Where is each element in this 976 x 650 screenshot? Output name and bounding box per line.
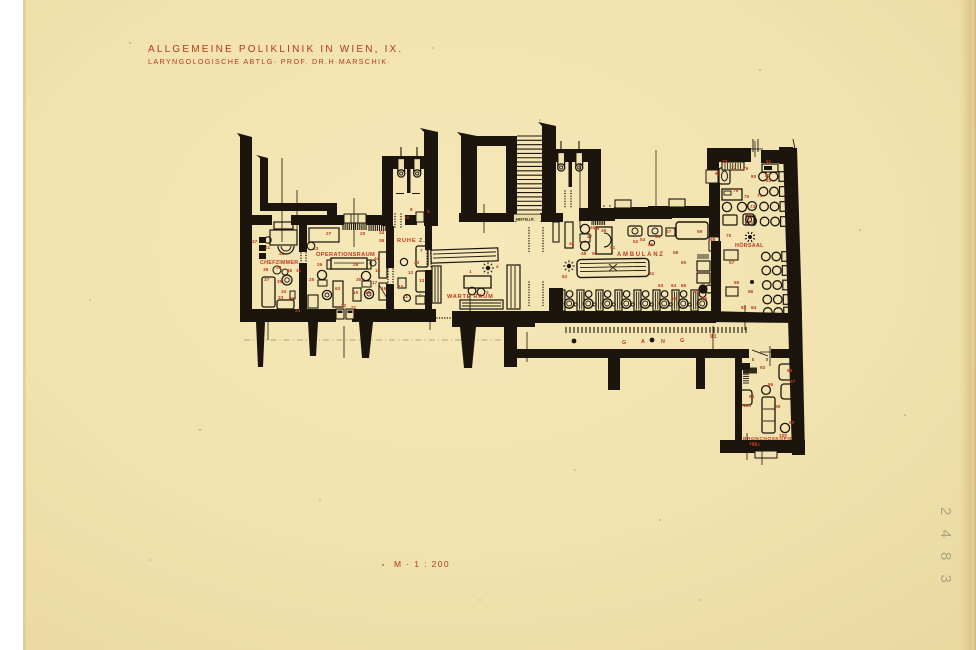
svg-text:AMBULANZ: AMBULANZ (617, 252, 665, 258)
svg-text:81: 81 (766, 159, 772, 164)
svg-text:23: 23 (313, 246, 319, 251)
svg-text:62: 62 (562, 274, 568, 279)
svg-text:91: 91 (710, 334, 717, 340)
svg-text:60: 60 (681, 260, 687, 265)
svg-text:55: 55 (648, 242, 654, 247)
svg-text:16: 16 (404, 215, 410, 220)
svg-text:57: 57 (729, 260, 735, 265)
svg-text:80: 80 (751, 174, 757, 179)
svg-text:47: 47 (587, 234, 593, 239)
svg-text:17: 17 (372, 280, 378, 285)
svg-text:64: 64 (671, 283, 677, 288)
svg-text:52: 52 (633, 239, 639, 244)
svg-text:70: 70 (726, 233, 732, 238)
svg-text:19: 19 (353, 290, 359, 295)
svg-text:84: 84 (751, 305, 757, 310)
svg-text:78: 78 (722, 159, 728, 164)
svg-text:44: 44 (374, 256, 380, 261)
svg-text:37: 37 (666, 229, 672, 234)
svg-text:63: 63 (658, 283, 664, 288)
svg-text:74: 74 (757, 193, 763, 198)
svg-text:2 4 8 3: 2 4 8 3 (937, 507, 954, 588)
svg-text:79: 79 (743, 166, 749, 171)
svg-text:54: 54 (655, 234, 661, 239)
svg-text:39: 39 (263, 267, 269, 272)
svg-text:11: 11 (403, 294, 408, 299)
svg-text:100: 100 (779, 433, 787, 438)
svg-text:1: 1 (469, 269, 472, 274)
svg-text:12: 12 (408, 270, 414, 275)
svg-text:46: 46 (287, 268, 293, 273)
svg-text:37: 37 (264, 277, 270, 282)
svg-text:61: 61 (649, 271, 655, 276)
svg-text:66: 66 (702, 296, 708, 301)
svg-text:32: 32 (289, 296, 295, 301)
svg-text:7: 7 (420, 248, 423, 253)
svg-text:25: 25 (309, 277, 315, 282)
svg-text:76: 76 (733, 188, 739, 193)
svg-text:ABSTELLR.: ABSTELLR. (516, 217, 535, 221)
svg-text:OPERATIONSRAUM: OPERATIONSRAUM (316, 252, 375, 258)
svg-text:RUHE Z.: RUHE Z. (397, 238, 426, 244)
svg-text:89: 89 (734, 280, 740, 285)
svg-text:ALLGEMEINE POLIKLINIK IN WIEN,: ALLGEMEINE POLIKLINIK IN WIEN, IX. (148, 44, 403, 55)
svg-text:71: 71 (748, 220, 754, 225)
svg-text:96: 96 (787, 368, 793, 373)
svg-text:103: 103 (743, 403, 751, 408)
svg-text:28: 28 (353, 262, 359, 267)
svg-text:48: 48 (581, 251, 587, 256)
svg-text:43: 43 (414, 260, 420, 265)
svg-text:47: 47 (252, 239, 258, 244)
svg-text:63: 63 (694, 289, 700, 294)
svg-text:LARYNGOLOGISCHE ABTLG· PROF. D: LARYNGOLOGISCHE ABTLG· PROF. DR.H·MARSCH… (148, 57, 391, 66)
svg-text:92: 92 (760, 365, 766, 370)
svg-text:83: 83 (766, 178, 772, 183)
svg-text:34: 34 (379, 230, 385, 235)
svg-text:3: 3 (486, 290, 489, 295)
svg-text:51: 51 (610, 245, 616, 250)
svg-text:21: 21 (351, 305, 357, 310)
svg-text:46: 46 (601, 228, 607, 233)
svg-text:58: 58 (673, 250, 679, 255)
svg-text:49: 49 (594, 226, 600, 231)
svg-text:33: 33 (278, 295, 284, 300)
svg-text:99: 99 (789, 420, 795, 425)
svg-text:65: 65 (681, 283, 687, 288)
svg-text:35: 35 (277, 279, 283, 284)
svg-text:13: 13 (419, 278, 425, 283)
svg-text:HÖRSAAL: HÖRSAAL (735, 242, 764, 249)
svg-text:73: 73 (750, 204, 756, 209)
svg-text:24: 24 (295, 308, 301, 313)
svg-text:36: 36 (379, 238, 385, 243)
svg-text:4: 4 (496, 264, 499, 269)
svg-text:N: N (661, 339, 665, 345)
svg-text:31: 31 (296, 268, 302, 273)
svg-text:M · 1 : 200: M · 1 : 200 (394, 559, 450, 569)
svg-text:8: 8 (410, 207, 413, 212)
svg-text:86: 86 (748, 289, 754, 294)
svg-text:18: 18 (365, 290, 371, 295)
svg-text:97: 97 (790, 379, 796, 384)
svg-text:9: 9 (419, 293, 422, 298)
svg-text:30: 30 (356, 277, 362, 282)
svg-text:83: 83 (741, 305, 747, 310)
svg-text:93: 93 (715, 171, 721, 176)
svg-text:59: 59 (697, 229, 703, 234)
svg-text:98: 98 (775, 404, 781, 409)
svg-text:10: 10 (398, 284, 404, 289)
svg-text:G: G (680, 338, 684, 344)
svg-text:63: 63 (335, 286, 341, 291)
svg-text:38: 38 (276, 265, 282, 270)
svg-text:101: 101 (749, 441, 757, 446)
svg-text:26: 26 (317, 262, 323, 267)
svg-text:50: 50 (592, 251, 598, 256)
svg-text:72: 72 (746, 214, 752, 219)
svg-text:42: 42 (279, 251, 285, 256)
svg-text:58: 58 (710, 237, 716, 242)
svg-text:34: 34 (281, 289, 287, 294)
svg-text:A: A (641, 339, 645, 345)
svg-text:94: 94 (749, 394, 755, 399)
svg-text:27: 27 (326, 231, 332, 236)
svg-text:44: 44 (569, 241, 575, 246)
svg-text:75: 75 (744, 194, 750, 199)
svg-text:16: 16 (381, 286, 387, 291)
svg-text:95: 95 (768, 382, 774, 387)
svg-text:5: 5 (427, 209, 430, 214)
svg-text:G: G (622, 340, 626, 346)
svg-text:22: 22 (341, 303, 347, 308)
svg-text:53: 53 (640, 237, 646, 242)
svg-text:66: 66 (671, 296, 677, 301)
svg-text:77: 77 (731, 165, 737, 170)
svg-text:20: 20 (360, 231, 366, 236)
svg-text:15: 15 (375, 268, 381, 273)
svg-text:41: 41 (265, 245, 271, 250)
